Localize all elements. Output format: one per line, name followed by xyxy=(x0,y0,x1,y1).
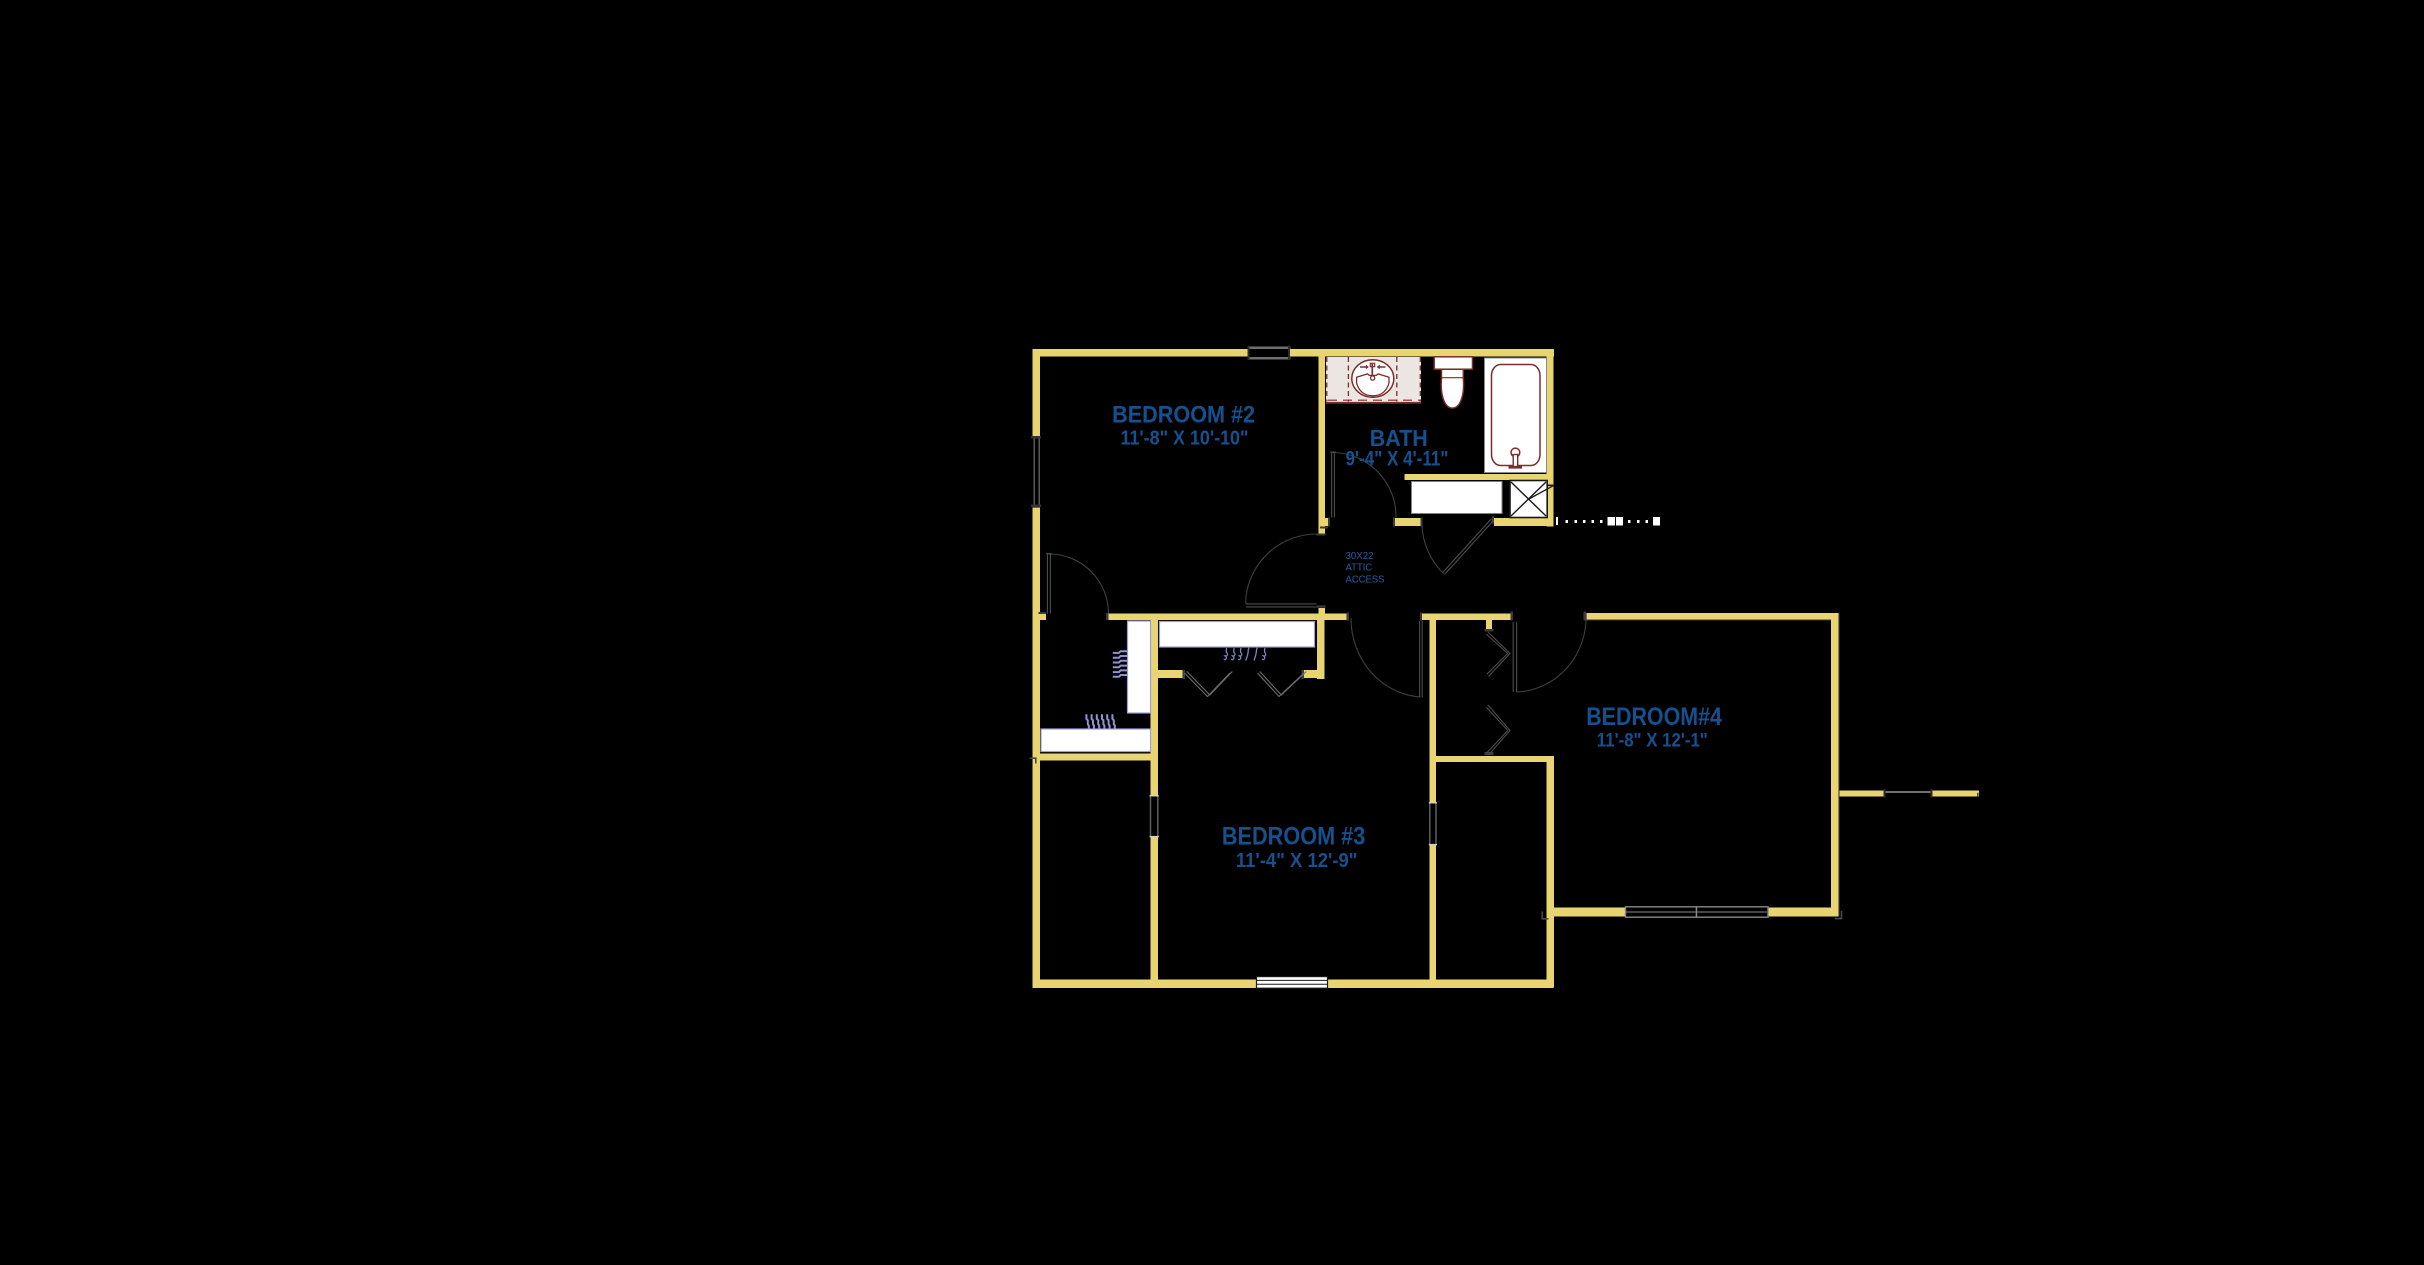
svg-text:BEDROOM #2: BEDROOM #2 xyxy=(1112,401,1255,428)
svg-text:9'-4" X 4'-11": 9'-4" X 4'-11" xyxy=(1346,447,1449,470)
svg-text:11'-4" X 12'-9": 11'-4" X 12'-9" xyxy=(1236,850,1358,872)
svg-text:ATTIC: ATTIC xyxy=(1346,563,1373,574)
svg-text:11'-8" X 12'-1": 11'-8" X 12'-1" xyxy=(1597,730,1708,751)
svg-text:30X22: 30X22 xyxy=(1346,551,1374,562)
svg-text:BEDROOM #3: BEDROOM #3 xyxy=(1222,822,1365,850)
svg-text:ACCESS: ACCESS xyxy=(1346,574,1385,585)
svg-text:BEDROOM#4: BEDROOM#4 xyxy=(1586,703,1722,731)
svg-text:11'-8" X 10'-10": 11'-8" X 10'-10" xyxy=(1121,427,1249,449)
